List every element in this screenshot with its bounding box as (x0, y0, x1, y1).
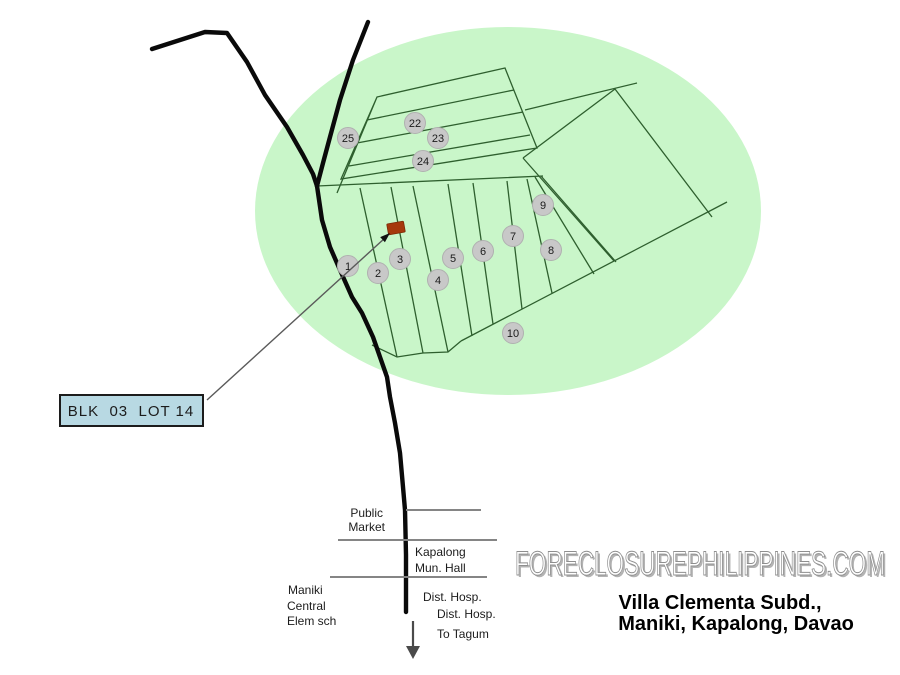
block-marker-label: 2 (375, 268, 381, 280)
block-marker-label: 3 (397, 254, 403, 266)
block-marker: 6 (473, 241, 494, 262)
callout: BLK 03 LOT 14 (60, 395, 203, 426)
block-marker-label: 25 (342, 133, 354, 145)
map-title-line1: Villa Clementa Subd., (618, 592, 821, 614)
south-arrow-head-icon (406, 646, 420, 659)
block-marker: 24 (413, 151, 434, 172)
block-marker: 10 (503, 323, 524, 344)
block-marker-label: 5 (450, 253, 456, 265)
location-map-page: 1 2 3 4 5 6 7 8 9 10 22 23 24 25 BLK 03 … (0, 0, 900, 675)
mun-hall-label-line1: Kapalong (415, 545, 466, 559)
block-marker: 4 (428, 270, 449, 291)
block-marker: 3 (390, 249, 411, 270)
block-marker: 7 (503, 226, 524, 247)
block-marker-label: 22 (409, 118, 421, 130)
mun-hall-label-line2: Mun. Hall (415, 561, 466, 575)
block-marker: 5 (443, 248, 464, 269)
block-marker: 1 (338, 256, 359, 277)
block-marker-label: 7 (510, 231, 516, 243)
location-map: 1 2 3 4 5 6 7 8 9 10 22 23 24 25 BLK 03 … (0, 0, 900, 675)
block-marker: 22 (405, 113, 426, 134)
block-marker-label: 6 (480, 246, 486, 258)
public-market-label-line1: Public (350, 506, 383, 520)
block-marker-label: 23 (432, 133, 444, 145)
block-marker: 9 (533, 195, 554, 216)
block-marker: 25 (338, 128, 359, 149)
block-marker-label: 8 (548, 245, 554, 257)
landmark-labels: Public Market Kapalong Mun. Hall Maniki … (287, 506, 496, 641)
south-direction-arrow (406, 621, 420, 659)
elem-school-label-line2: Central (287, 599, 326, 613)
block-marker-label: 9 (540, 200, 546, 212)
block-marker: 8 (541, 240, 562, 261)
block-marker-label: 24 (417, 156, 429, 168)
block-marker-label: 4 (435, 275, 441, 287)
block-marker-label: 10 (507, 328, 519, 340)
callout-label: BLK 03 LOT 14 (68, 403, 194, 420)
subject-lot-marker (387, 221, 406, 235)
block-marker: 2 (368, 263, 389, 284)
hospital-label-1: Dist. Hosp. (423, 590, 482, 604)
block-marker: 23 (428, 128, 449, 149)
to-tagum-label: To Tagum (437, 627, 489, 641)
elem-school-label-line3: Elem sch (287, 614, 336, 628)
public-market-label-line2: Market (348, 520, 385, 534)
watermark-text: FORECLOSUREPHILIPPINES.COM (515, 545, 885, 583)
elem-school-label-line1: Maniki (288, 583, 323, 597)
hospital-label-2: Dist. Hosp. (437, 607, 496, 621)
map-title-line2: Maniki, Kapalong, Davao (618, 613, 854, 635)
